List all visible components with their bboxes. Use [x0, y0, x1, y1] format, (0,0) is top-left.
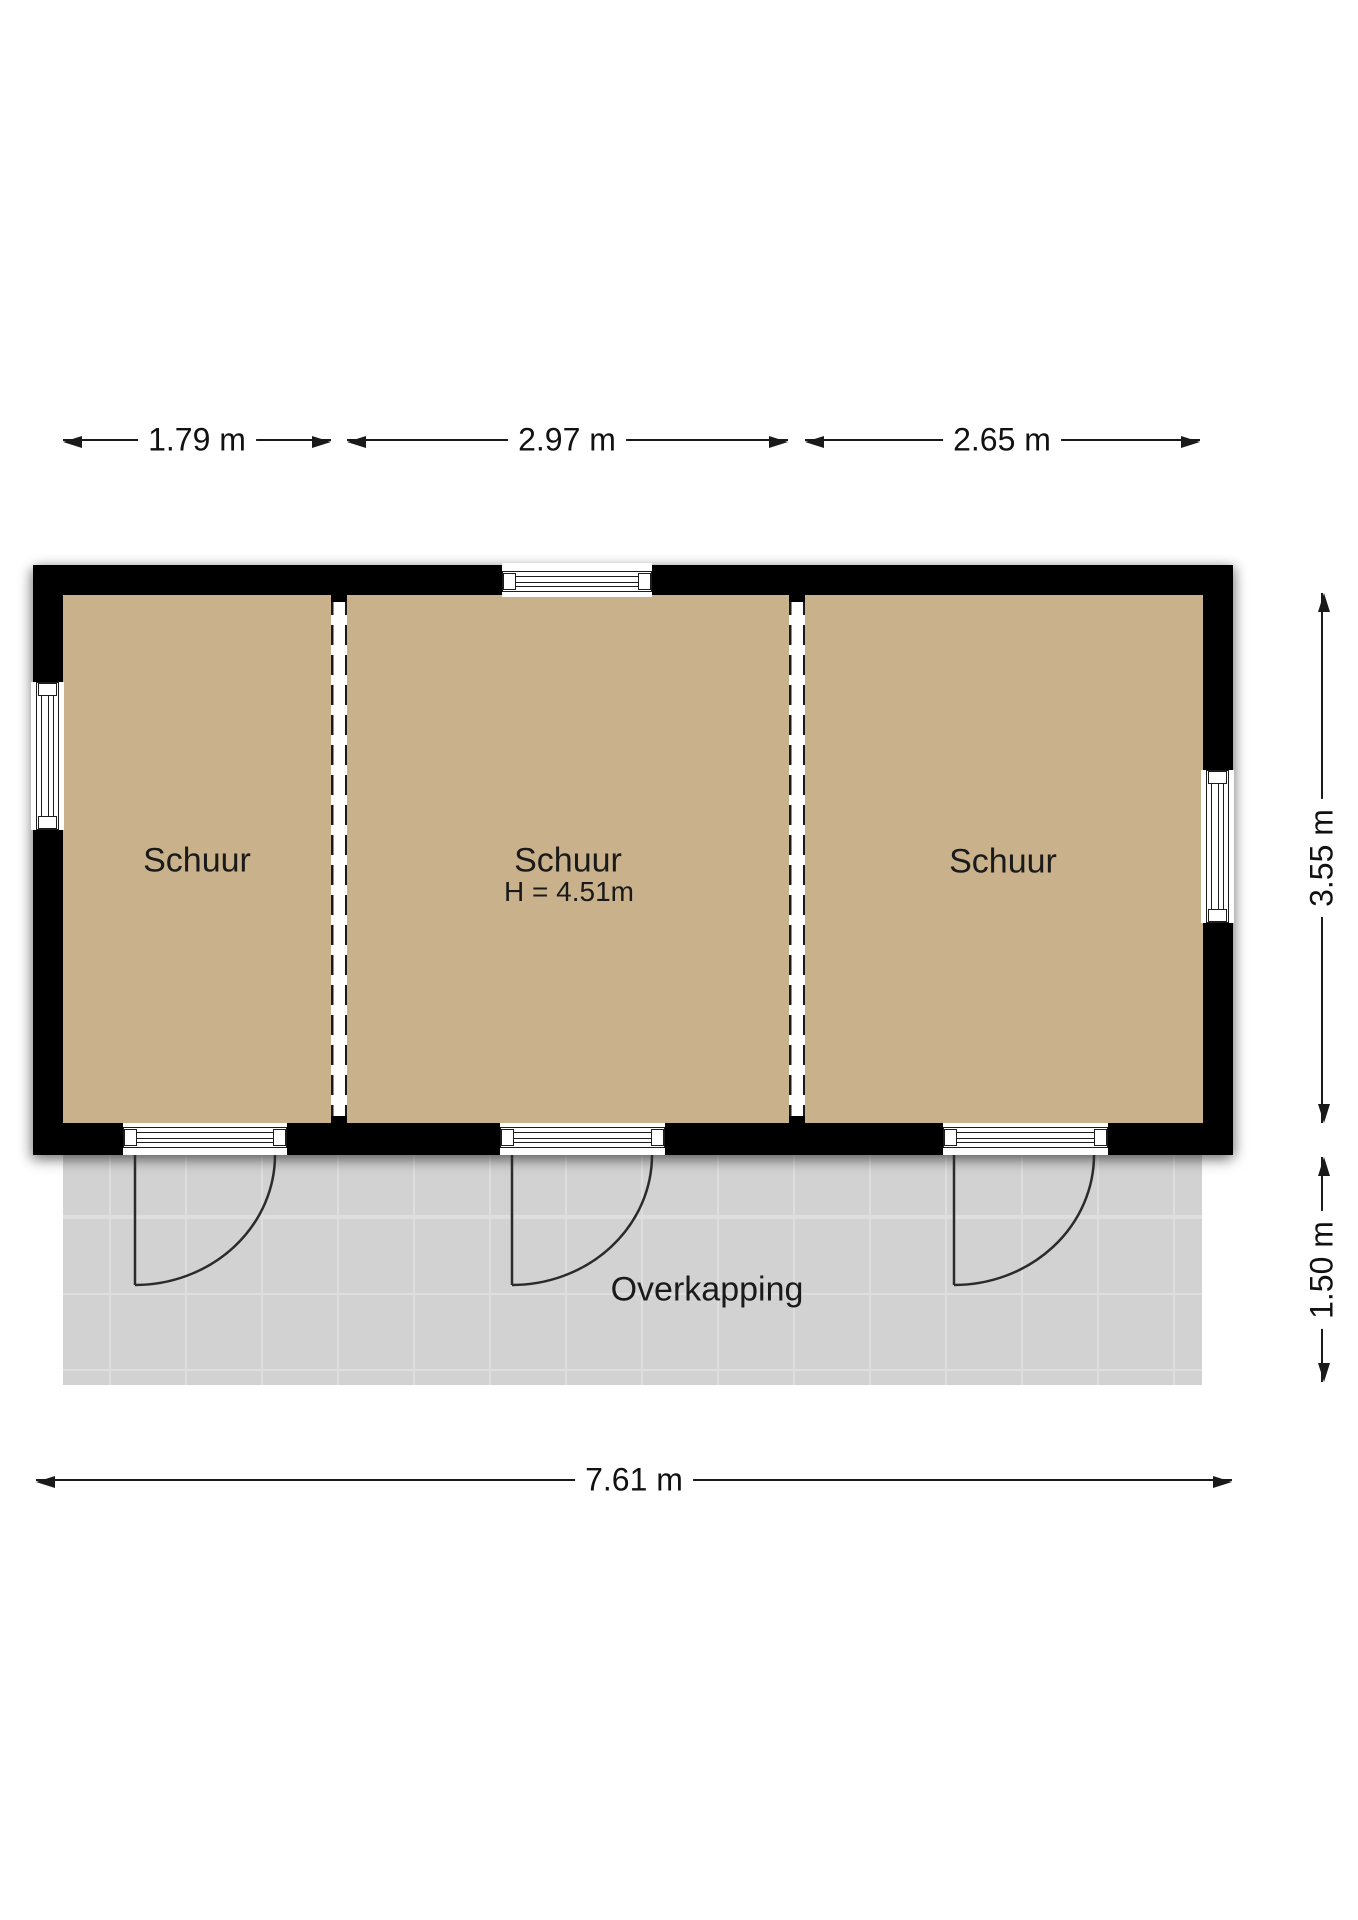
floor-plan: Schuur Schuur H = 4.51m Schuur Overkappi…: [0, 0, 1358, 1920]
door-swing-arc-2: [512, 1155, 652, 1285]
room-label-schuur-left: Schuur: [143, 842, 251, 881]
dimension-value-top-3: 2.65 m: [943, 420, 1061, 461]
dimension-value-top-1: 1.79 m: [138, 420, 256, 461]
canopy-label: Overkapping: [611, 1271, 804, 1310]
room-label-schuur-right: Schuur: [949, 843, 1057, 882]
door-swing-arc-3: [954, 1155, 1094, 1285]
door-swing-layer: [0, 0, 1358, 1920]
room-label-schuur-middle: Schuur: [514, 842, 622, 881]
dimension-value-top-2: 2.97 m: [508, 420, 626, 461]
dimension-value-right-2: 1.50 m: [1302, 1211, 1343, 1329]
door-swing-arc-1: [135, 1155, 275, 1285]
dimension-value-bottom: 7.61 m: [575, 1460, 693, 1501]
dimension-value-right-1: 3.55 m: [1302, 799, 1343, 917]
room-height-label: H = 4.51m: [504, 876, 634, 908]
